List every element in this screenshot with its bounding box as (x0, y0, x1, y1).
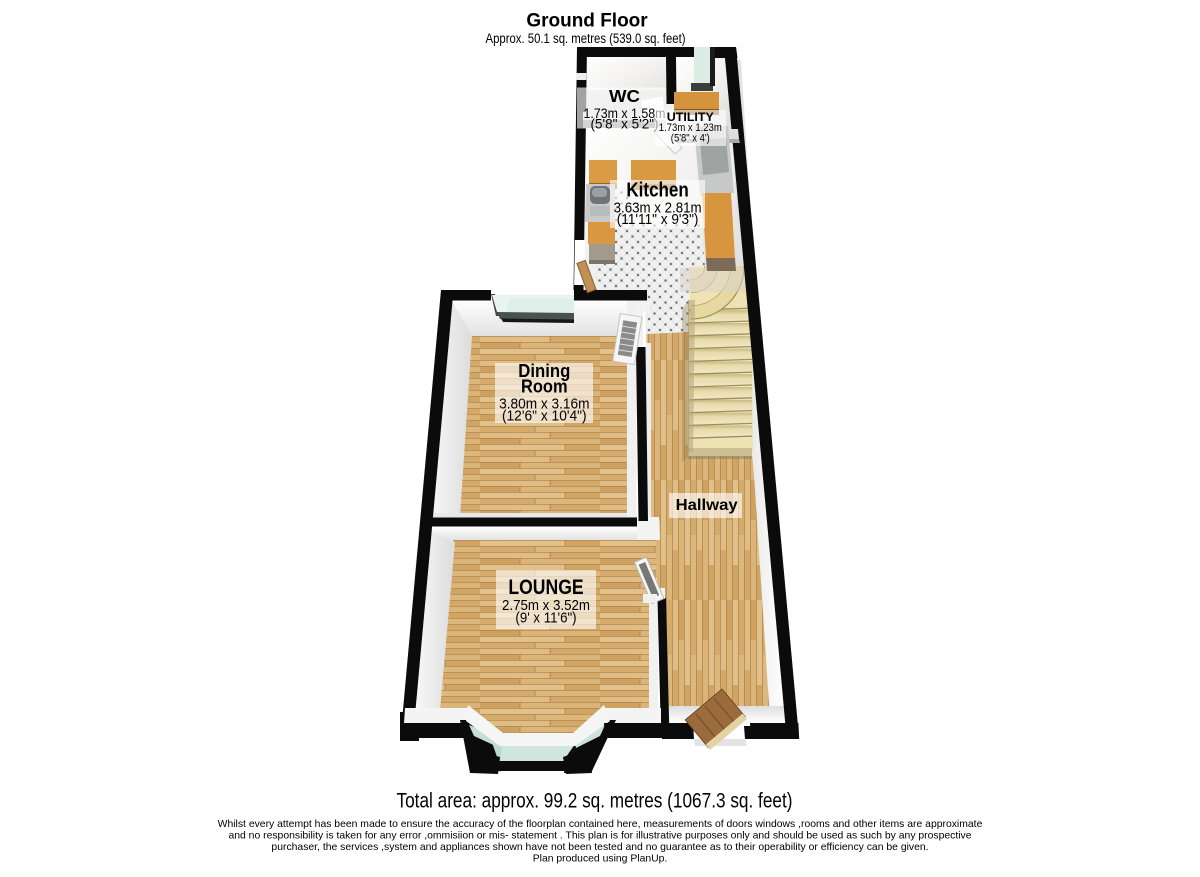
svg-text:WC: WC (609, 86, 640, 106)
svg-text:Total area: approx. 99.2 sq. m: Total area: approx. 99.2 sq. metres (106… (397, 790, 793, 813)
svg-text:Approx. 50.1 sq. metres (539.0: Approx. 50.1 sq. metres (539.0 sq. feet) (486, 31, 686, 46)
svg-text:and no responsibility is taken: and no responsibility is taken for any e… (228, 831, 971, 842)
svg-text:(5'8" x 5'2"): (5'8" x 5'2") (591, 116, 659, 132)
svg-text:(9' x 11'6"): (9' x 11'6") (515, 611, 576, 627)
svg-text:purchaser, the services ,syste: purchaser, the services ,system and appl… (271, 842, 928, 853)
svg-text:Whilst every attempt has been: Whilst every attempt has been made to en… (218, 819, 983, 830)
svg-text:(5'8" x 4'): (5'8" x 4') (671, 132, 710, 144)
svg-text:(11'11" x 9'3"): (11'11" x 9'3") (617, 211, 699, 228)
svg-text:(12'6" x 10'4"): (12'6" x 10'4") (502, 409, 587, 425)
svg-text:LOUNGE: LOUNGE (508, 576, 583, 599)
svg-text:Room: Room (521, 375, 568, 396)
svg-text:Hallway: Hallway (676, 497, 738, 514)
svg-text:Plan produced using PlanUp.: Plan produced using PlanUp. (533, 854, 668, 865)
svg-text:Ground Floor: Ground Floor (526, 11, 648, 32)
